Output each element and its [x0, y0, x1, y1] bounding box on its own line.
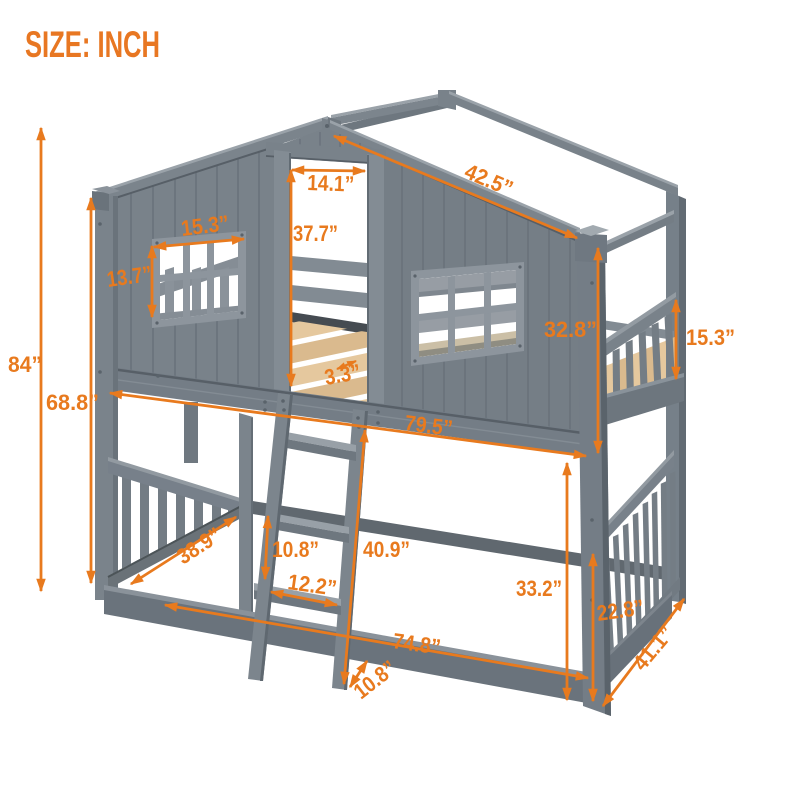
- svg-text:SIZE: INCH: SIZE: INCH: [25, 24, 160, 65]
- svg-text:14.1”: 14.1”: [307, 170, 355, 197]
- svg-text:37.7”: 37.7”: [293, 221, 338, 246]
- svg-text:68.8”: 68.8”: [46, 390, 99, 415]
- svg-text:32.8”: 32.8”: [544, 317, 597, 342]
- svg-text:40.9”: 40.9”: [363, 537, 410, 562]
- svg-text:33.2”: 33.2”: [516, 576, 562, 601]
- svg-text:84”: 84”: [8, 352, 42, 377]
- svg-text:10.8”: 10.8”: [272, 537, 319, 562]
- svg-text:15.3”: 15.3”: [686, 325, 735, 350]
